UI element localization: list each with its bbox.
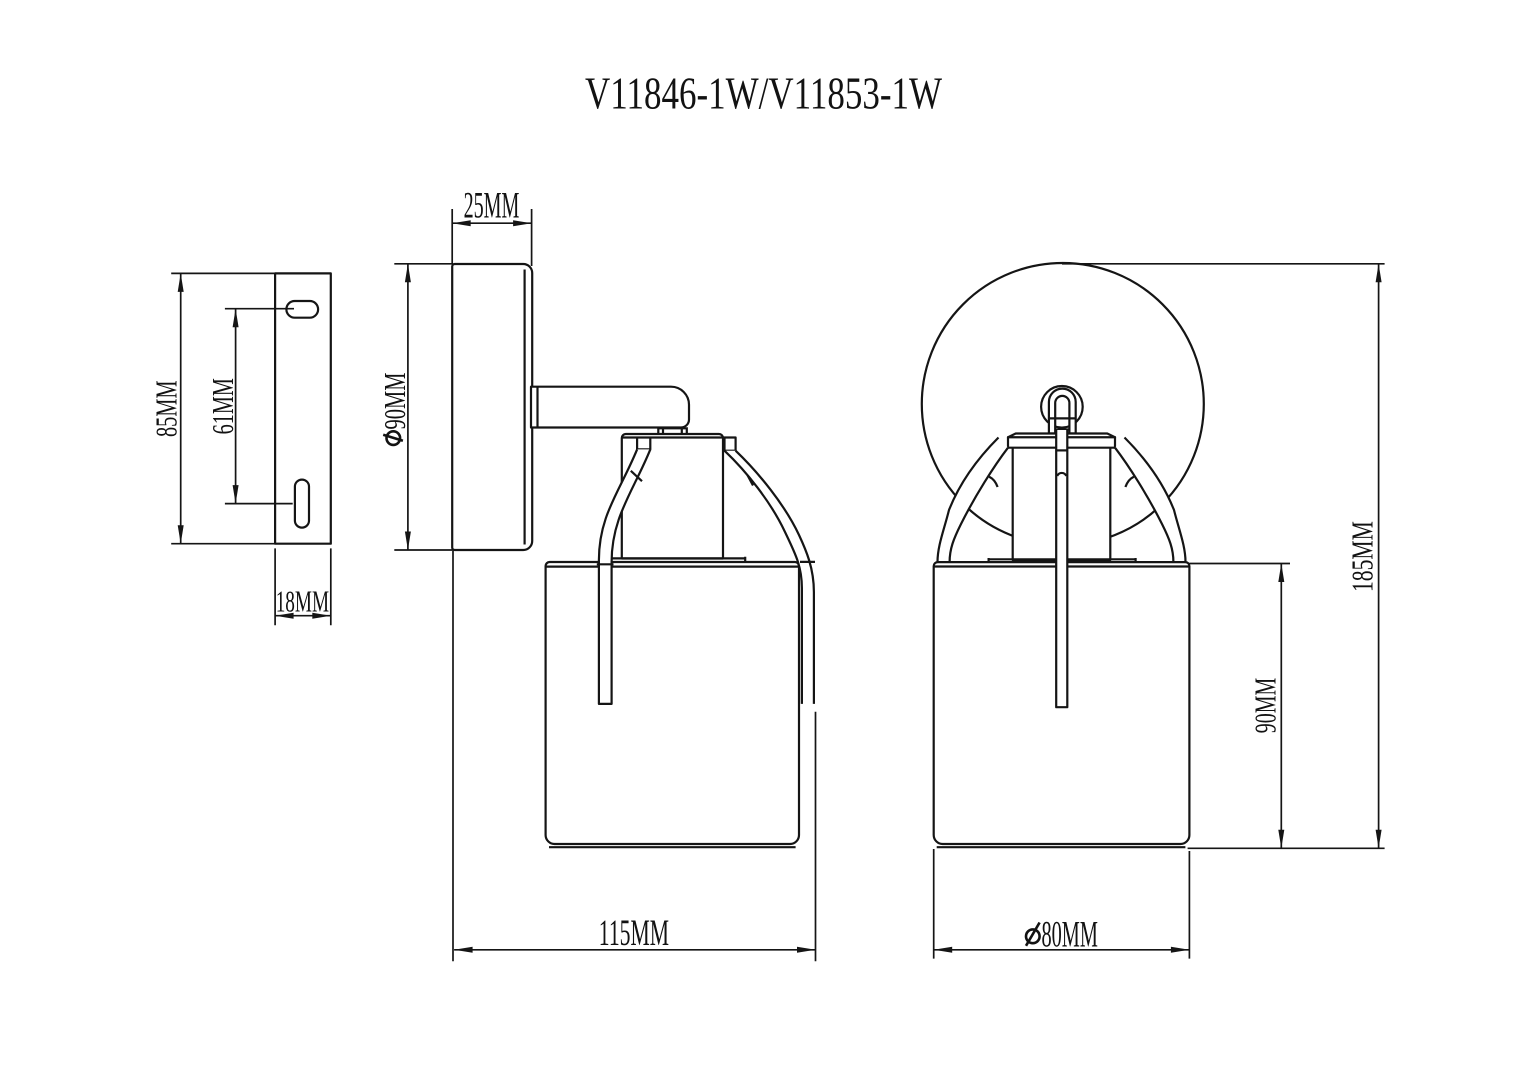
svg-text:61MM: 61MM: [205, 378, 240, 434]
svg-text:85MM: 85MM: [148, 380, 183, 437]
svg-text:185MM: 185MM: [1345, 521, 1380, 592]
svg-text:80MM: 80MM: [1042, 915, 1098, 956]
svg-text:115MM: 115MM: [599, 913, 669, 954]
svg-text:V11846-1W/V11853-1W: V11846-1W/V11853-1W: [585, 68, 942, 119]
svg-text:90MM: 90MM: [1248, 678, 1283, 734]
svg-text:90MM: 90MM: [377, 373, 412, 430]
svg-text:25MM: 25MM: [464, 186, 520, 227]
svg-text:18MM: 18MM: [276, 583, 329, 618]
